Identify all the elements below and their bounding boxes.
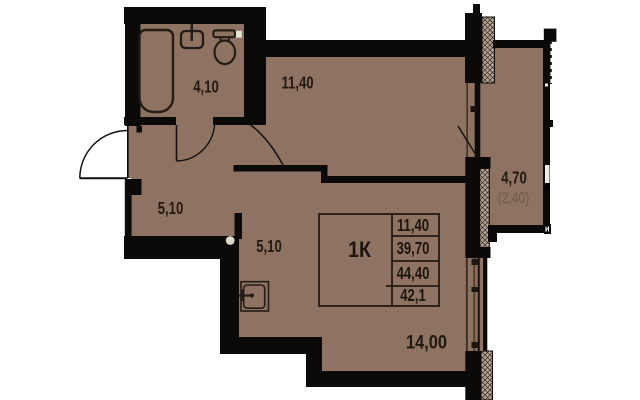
svg-text:1К: 1К <box>348 238 371 263</box>
svg-text:14,00: 14,00 <box>406 331 447 353</box>
svg-text:44,40: 44,40 <box>397 264 430 283</box>
svg-text:39,70: 39,70 <box>397 239 430 258</box>
svg-text:(2,40): (2,40) <box>498 189 530 207</box>
svg-text:42,1: 42,1 <box>400 286 426 305</box>
svg-text:5,10: 5,10 <box>158 199 184 218</box>
svg-text:5,10: 5,10 <box>256 237 282 256</box>
svg-text:4,70: 4,70 <box>501 169 527 188</box>
svg-text:11,40: 11,40 <box>281 74 313 93</box>
svg-text:4,10: 4,10 <box>193 78 219 97</box>
svg-text:11,40: 11,40 <box>397 216 429 235</box>
